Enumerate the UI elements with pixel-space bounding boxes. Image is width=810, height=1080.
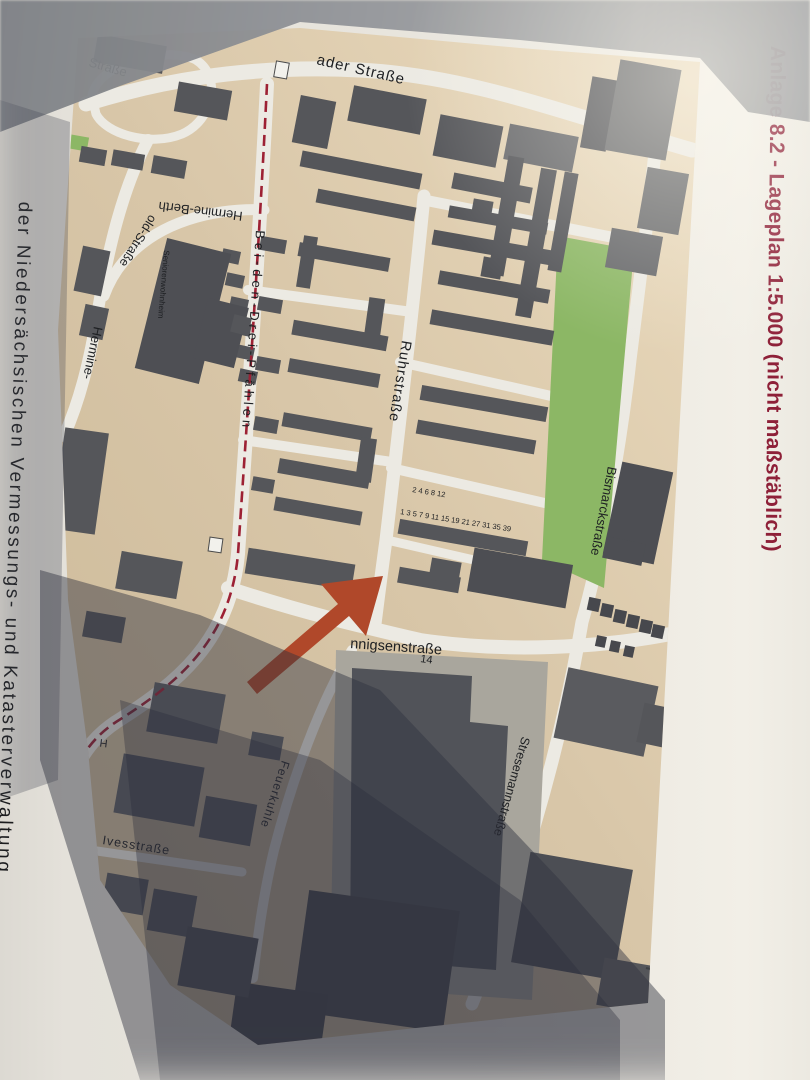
map-area: Straße ader Straße Hermine-Berth old-Str… [40,10,740,1070]
site-map-photo: Straße ader Straße Hermine-Berth old-Str… [0,0,810,1080]
photographed-document: { "document": { "annex_title": "Anlage 8… [0,0,810,1080]
street-label-edge-fragment: H [99,736,108,749]
house-number-14: 14 [420,653,434,667]
